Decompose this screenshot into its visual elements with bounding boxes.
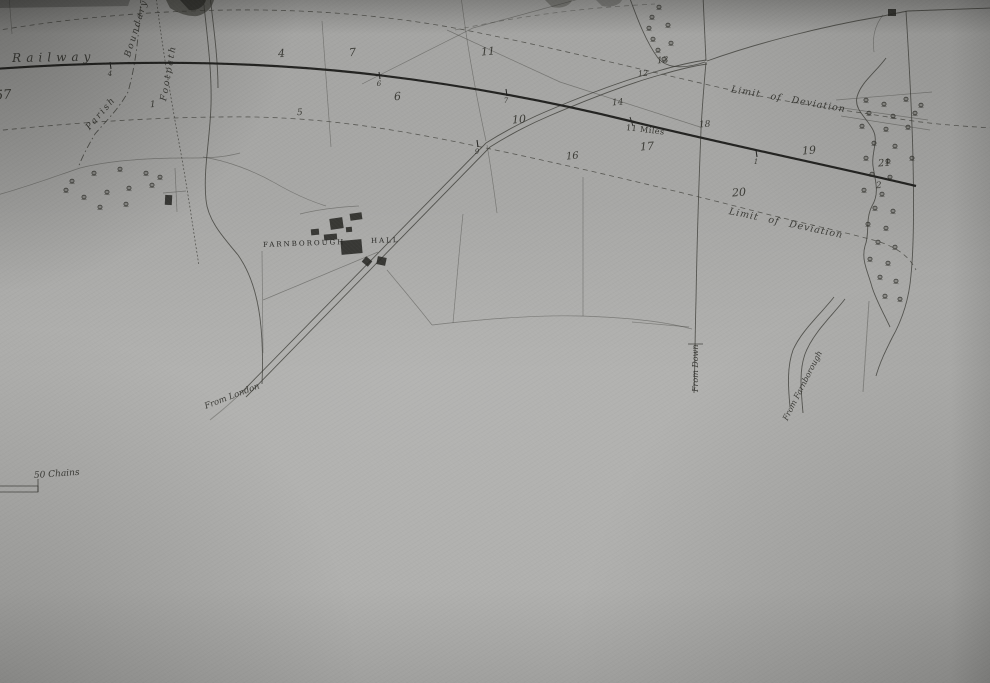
tree-symbol [157, 175, 162, 180]
chain-marker-number: 9 [475, 148, 479, 156]
tree-symbol [650, 37, 655, 42]
tree-symbol [883, 226, 888, 231]
tree-symbol [104, 190, 109, 195]
tree-symbol [882, 294, 887, 299]
parcel-number: 5 [297, 108, 303, 118]
tree-symbol [63, 188, 68, 193]
parcel-number: 11 [481, 45, 496, 59]
tree-symbol [861, 188, 866, 193]
parcel-number: 1 [150, 100, 156, 110]
railway-label: Railway [12, 50, 96, 65]
building-footprint [311, 229, 319, 236]
tree-symbol [123, 202, 128, 207]
tree-symbol [883, 127, 888, 132]
parcel-number: 17 [640, 140, 655, 154]
parcel-number: 2 [876, 181, 882, 191]
tree-symbol [97, 205, 102, 210]
tree-symbol [668, 41, 673, 46]
north-road [703, 0, 706, 61]
estate-name-label-2: HALL [371, 236, 400, 245]
tree-symbol [859, 124, 864, 129]
tree-symbol [885, 261, 890, 266]
tree-symbol [867, 257, 872, 262]
parcel-number: 13 [657, 56, 669, 67]
footpath-line [156, 0, 199, 266]
tree-symbol [866, 111, 871, 116]
tree-symbol [117, 167, 122, 172]
tree-symbol [892, 144, 897, 149]
chain-marker-number: 1 [754, 158, 758, 166]
tree-symbol [863, 98, 868, 103]
tree-symbol [655, 48, 660, 53]
parcel-number: 7 [349, 46, 357, 59]
tree-symbol [912, 111, 917, 116]
lane-to-hall [203, 0, 263, 384]
parcel-number: 12 [638, 69, 649, 79]
tree-symbol [877, 275, 882, 280]
tree-symbol [69, 179, 74, 184]
upper-branch-dashed [455, 4, 655, 30]
tree-symbol [893, 279, 898, 284]
tree-symbol [649, 15, 654, 20]
building-footprint [888, 9, 896, 16]
tree-symbol [863, 156, 868, 161]
tree-symbol [665, 23, 670, 28]
paper-smudges [0, 0, 622, 16]
scale-bar [0, 479, 38, 492]
farnborough-road-b [801, 299, 845, 413]
building-footprint [329, 217, 343, 230]
tree-symbol [905, 125, 910, 130]
tree-symbol [872, 206, 877, 211]
building-footprint [376, 256, 386, 266]
chain-marker-number: 6 [377, 80, 381, 88]
parcel-number: 14 [612, 98, 624, 109]
tree-symbol [143, 171, 148, 176]
railway-chain-markers [110, 62, 757, 157]
chain-marker-tick [379, 72, 380, 79]
tree-symbol [875, 240, 880, 245]
tree-symbol [897, 297, 902, 302]
tree-symbol [909, 156, 914, 161]
farnborough-road-c [863, 301, 869, 392]
tree-symbol [81, 195, 86, 200]
tree-symbol [656, 5, 661, 10]
building-footprint [350, 212, 363, 221]
parcel-number: 18 [699, 120, 711, 131]
tree-symbol [881, 102, 886, 107]
tree-symbol [646, 26, 651, 31]
parcel-number: 20 [732, 186, 747, 200]
parcel-number: 4 [278, 47, 286, 60]
parcel-number: 21 [878, 158, 891, 170]
tree-symbol [918, 103, 923, 108]
parcel-number: 19 [802, 144, 817, 158]
from-down-label: From Down [691, 344, 700, 392]
tree-symbol [879, 192, 884, 197]
tree-symbol [890, 209, 895, 214]
building-footprint [346, 227, 352, 233]
tree-symbol [865, 222, 870, 227]
limit-lower-line [0, 117, 916, 270]
tree-symbol [149, 183, 154, 188]
chain-marker-number: 7 [504, 97, 508, 105]
northeast-road [707, 8, 990, 61]
parcel-number: 57 [0, 87, 12, 103]
tree-symbol [91, 171, 96, 176]
railway-line [0, 63, 916, 186]
chain-marker-number: 4 [108, 70, 112, 78]
tree-symbol [903, 97, 908, 102]
tree-symbol [126, 186, 131, 191]
field-boundary-lines [0, 0, 932, 353]
tree-symbol [871, 141, 876, 146]
parcel-number: 16 [566, 151, 579, 163]
london-road-a [241, 60, 706, 393]
lane-to-hall-2 [210, 0, 218, 88]
parcel-number: 6 [394, 90, 402, 103]
tree-symbol [892, 245, 897, 250]
parcel-number: 10 [512, 113, 527, 127]
map-image: Railway Parish Boundary Footpath Limit o… [0, 0, 990, 683]
building-footprint [165, 195, 173, 205]
